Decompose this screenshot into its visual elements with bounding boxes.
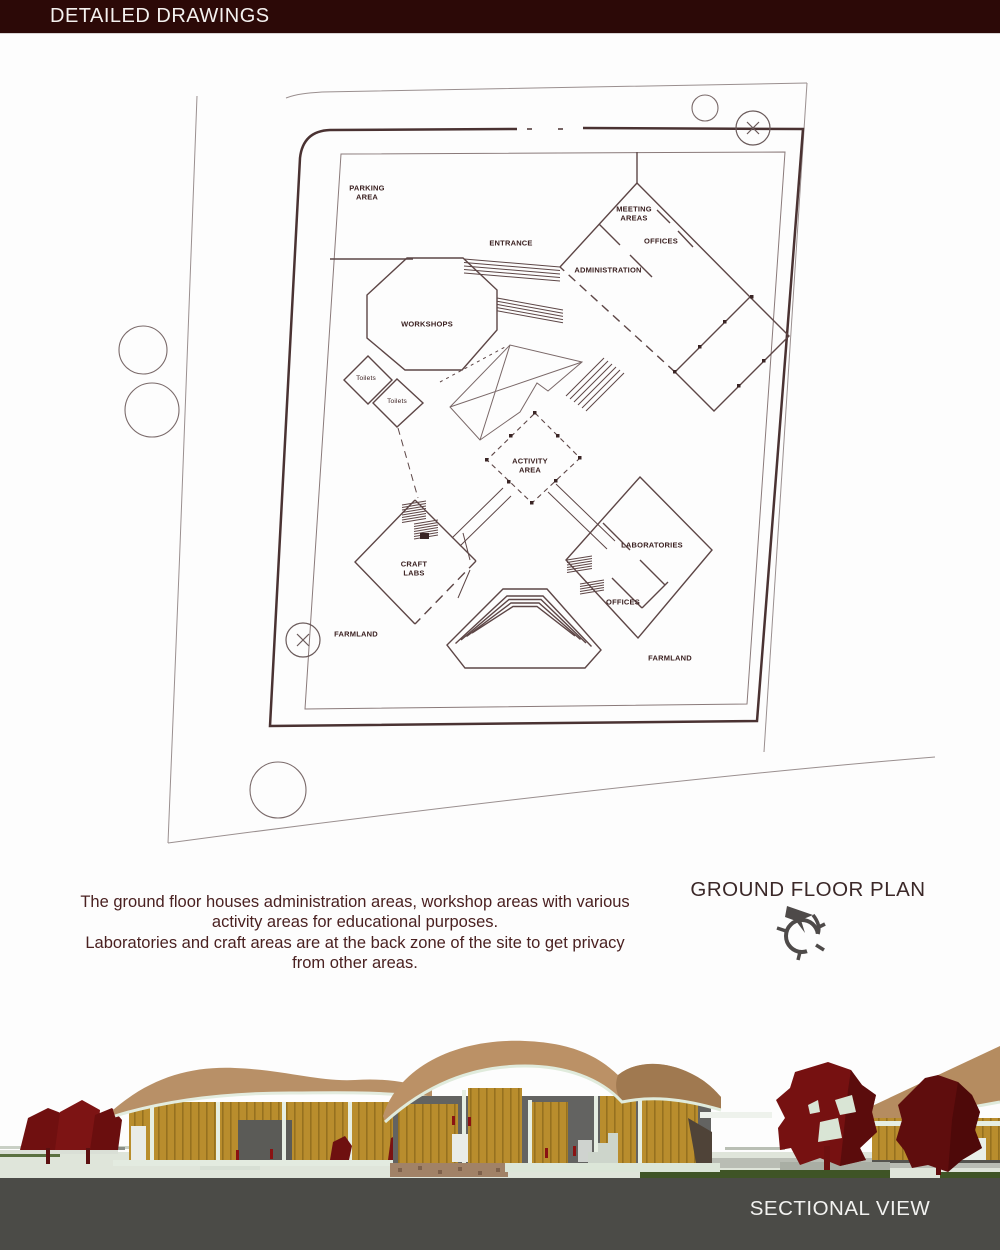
- plan-label-craft-labs: CRAFT LABS: [401, 560, 427, 579]
- plan-label-laboratories: LABORATORIES: [621, 540, 683, 549]
- description-line: from other areas.: [52, 953, 658, 973]
- plan-label-farmland-left: FARMLAND: [334, 629, 378, 638]
- plan-label-toilets-1: Toilets: [356, 375, 376, 383]
- plan-label-entrance: ENTRANCE: [489, 238, 532, 247]
- tree-circle-icon: [119, 95, 718, 818]
- plan-label-toilets-2: Toilets: [387, 398, 407, 406]
- description-text: The ground floor houses administration a…: [52, 892, 658, 974]
- plan-label-farmland-right: FARMLAND: [648, 653, 692, 662]
- plan-label-workshops: WORKSHOPS: [401, 319, 453, 328]
- ground-floor-plan-title: GROUND FLOOR PLAN: [686, 878, 930, 902]
- sectional-view-title: SECTIONAL VIEW: [740, 1197, 940, 1221]
- description-line: activity areas for educational purposes.: [52, 912, 658, 932]
- plan-label-administration: ADMINISTRATION: [574, 265, 641, 274]
- description-line: The ground floor houses administration a…: [52, 892, 658, 912]
- plan-label-offices-bottom: OFFICES: [606, 597, 640, 606]
- drawing-canvas: [0, 0, 1000, 1250]
- description-line: Laboratories and craft areas are at the …: [52, 933, 658, 953]
- plan-label-offices-top: OFFICES: [644, 236, 678, 245]
- plan-label-parking-area: PARKING AREA: [349, 184, 384, 203]
- presentation-board: DETAILED DRAWINGS PARKING AREA ENTRANCE …: [0, 0, 1000, 1250]
- north-arrow-icon: [777, 906, 825, 960]
- plan-label-activity-area: ACTIVITY AREA: [512, 457, 548, 476]
- page-title: DETAILED DRAWINGS: [50, 5, 270, 28]
- header-bar: DETAILED DRAWINGS: [0, 0, 1000, 34]
- plan-label-meeting-areas: MEETING AREAS: [616, 205, 652, 224]
